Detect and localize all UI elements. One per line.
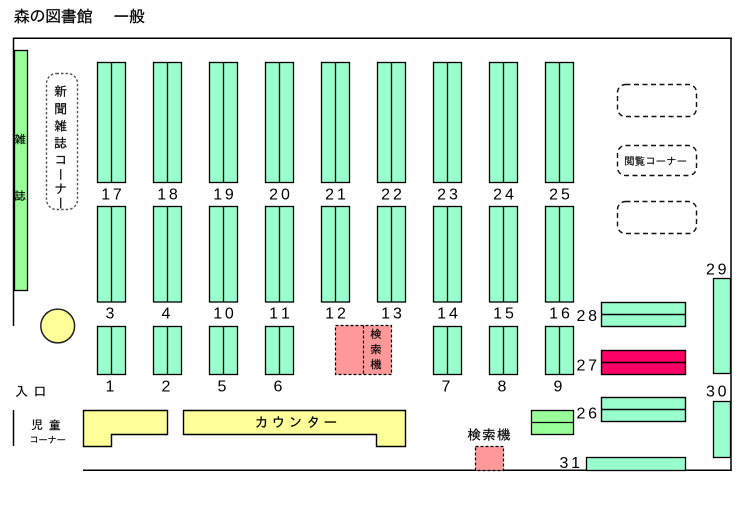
svg-text:3: 3 <box>449 187 458 204</box>
svg-text:9: 9 <box>225 187 234 204</box>
svg-text:2: 2 <box>577 308 586 325</box>
svg-text:0: 0 <box>281 187 290 204</box>
svg-text:1: 1 <box>381 306 390 323</box>
svg-text:7: 7 <box>442 378 451 395</box>
svg-text:1: 1 <box>281 306 290 323</box>
svg-text:9: 9 <box>554 378 563 395</box>
svg-text:5: 5 <box>505 306 514 323</box>
svg-text:4: 4 <box>449 306 458 323</box>
svg-text:3: 3 <box>706 384 715 401</box>
svg-text:1: 1 <box>101 187 110 204</box>
svg-text:8: 8 <box>588 308 597 325</box>
svg-text:1: 1 <box>549 306 558 323</box>
svg-text:2: 2 <box>437 187 446 204</box>
svg-text:0: 0 <box>225 306 234 323</box>
svg-text:2: 2 <box>493 187 502 204</box>
svg-text:6: 6 <box>588 406 597 423</box>
svg-text:1: 1 <box>325 306 334 323</box>
svg-text:8: 8 <box>169 187 178 204</box>
svg-text:1: 1 <box>571 455 580 472</box>
svg-text:3: 3 <box>106 306 115 323</box>
svg-text:7: 7 <box>113 187 122 204</box>
svg-text:2: 2 <box>549 187 558 204</box>
svg-text:2: 2 <box>577 406 586 423</box>
svg-text:4: 4 <box>505 187 514 204</box>
svg-text:2: 2 <box>381 187 390 204</box>
svg-text:1: 1 <box>437 306 446 323</box>
svg-text:4: 4 <box>162 306 171 323</box>
svg-text:3: 3 <box>393 306 402 323</box>
svg-text:6: 6 <box>274 378 283 395</box>
svg-text:1: 1 <box>213 187 222 204</box>
svg-text:0: 0 <box>718 384 727 401</box>
svg-text:1: 1 <box>106 378 115 395</box>
svg-text:2: 2 <box>577 358 586 375</box>
svg-text:2: 2 <box>393 187 402 204</box>
svg-text:1: 1 <box>157 187 166 204</box>
svg-text:9: 9 <box>718 262 727 279</box>
svg-text:7: 7 <box>588 358 597 375</box>
svg-text:3: 3 <box>560 455 569 472</box>
svg-text:1: 1 <box>493 306 502 323</box>
svg-text:2: 2 <box>337 306 346 323</box>
svg-text:8: 8 <box>498 378 507 395</box>
svg-text:1: 1 <box>269 306 278 323</box>
svg-text:6: 6 <box>561 306 570 323</box>
svg-text:2: 2 <box>706 262 715 279</box>
svg-text:1: 1 <box>213 306 222 323</box>
svg-text:2: 2 <box>325 187 334 204</box>
svg-text:2: 2 <box>162 378 171 395</box>
svg-text:2: 2 <box>269 187 278 204</box>
svg-text:1: 1 <box>337 187 346 204</box>
svg-text:5: 5 <box>561 187 570 204</box>
svg-text:5: 5 <box>218 378 227 395</box>
